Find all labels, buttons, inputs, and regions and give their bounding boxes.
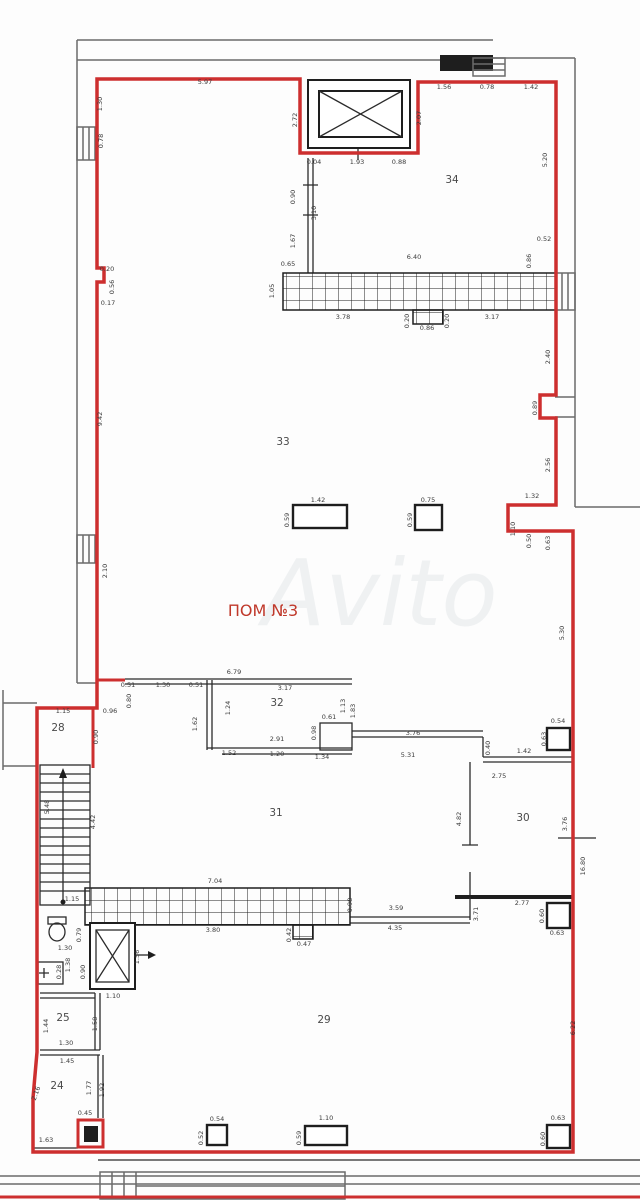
dimension-label: 1.34 <box>315 753 329 761</box>
dimension-label: 0.63 <box>550 929 564 937</box>
dimension-label: 1.45 <box>60 1057 74 1065</box>
dimension-label: 1.58 <box>91 1017 99 1031</box>
dimension-label: 0.51 <box>189 681 203 689</box>
dimension-label: 1.62 <box>191 717 199 731</box>
room-number-label: 28 <box>51 722 64 734</box>
dimension-label: 1.30 <box>59 1039 73 1047</box>
dimension-label: 0.20 <box>100 265 114 273</box>
dimension-label: 1.38 <box>64 958 72 972</box>
stairs <box>40 765 90 905</box>
dimension-label: 2.16 <box>30 1085 42 1101</box>
dimension-label: 16.80 <box>579 857 587 876</box>
toilet-icon <box>49 923 65 941</box>
dimension-label: 0.90 <box>92 730 100 744</box>
dimension-label: 1.15 <box>65 895 79 903</box>
dimension-label: 5.30 <box>558 626 566 640</box>
dimension-label: 0.50 <box>525 534 533 548</box>
dimension-label: 0.63 <box>540 732 548 746</box>
dimension-label: 0.89 <box>531 401 539 415</box>
dimension-label: 0.63 <box>544 536 552 550</box>
window <box>77 535 95 563</box>
window <box>77 127 95 160</box>
dimension-label: 1.13 <box>339 699 347 713</box>
dimension-label: 1.10 <box>106 992 120 1000</box>
dimension-label: 2.75 <box>492 772 506 780</box>
dimension-label: 3.76 <box>561 817 569 831</box>
interior-walls <box>85 80 573 939</box>
dimension-label: 3.59 <box>389 904 403 912</box>
dimension-label: 0.96 <box>103 707 117 715</box>
dimension-label: 5.48 <box>43 800 51 814</box>
dimension-label: 2.72 <box>291 113 299 127</box>
dimension-label: 1.42 <box>311 496 325 504</box>
dimension-label: 0.17 <box>101 299 115 307</box>
dimension-label: 3.10 <box>310 206 318 220</box>
room-number-label: 30 <box>516 812 529 824</box>
dimension-label: 0.75 <box>421 496 435 504</box>
dimension-label: 6.40 <box>407 253 421 261</box>
room-number-label: 25 <box>56 1012 69 1024</box>
dimension-label: 1.20 <box>270 750 284 758</box>
dimension-label: 0.47 <box>297 940 311 948</box>
floor-plan-svg: Avito <box>0 0 640 1200</box>
dimension-label: 1.56 <box>437 83 451 91</box>
closet <box>320 723 352 750</box>
dimension-label: 0.61 <box>322 713 336 721</box>
dimension-label: 1.10 <box>319 1114 333 1122</box>
dimension-label: 1.92 <box>98 1083 106 1097</box>
dimension-label: 0.56 <box>108 280 116 294</box>
dimension-label: 0.42 <box>285 928 293 942</box>
dimension-label: 6.22 <box>569 1021 577 1035</box>
dimension-label: 1.63 <box>39 1136 53 1144</box>
floor-plan-page: Avito <box>0 0 640 1200</box>
dimension-label: 0.60 <box>538 909 546 923</box>
dimension-label: 0.04 <box>307 158 321 166</box>
room-number-label: 33 <box>276 436 289 448</box>
dimension-label: 6.79 <box>227 668 241 676</box>
hatched-wall-notch <box>413 310 443 324</box>
dimension-label: 2.07 <box>415 111 423 125</box>
dimension-label: 4.42 <box>89 815 97 829</box>
dimension-label: 5.20 <box>541 153 549 167</box>
room-number-label: 24 <box>50 1080 64 1092</box>
dimension-label: 1.30 <box>96 97 104 111</box>
dimension-label: 2.77 <box>515 899 529 907</box>
hatched-wall-notch <box>293 925 313 939</box>
dimension-label: 0.98 <box>310 726 318 740</box>
plus-icon <box>39 968 49 978</box>
dimension-label: 3.71 <box>472 907 480 921</box>
dimension-label: 1.32 <box>525 492 539 500</box>
dimension-label: 0.40 <box>484 741 492 755</box>
dimension-label: 3.78 <box>336 313 350 321</box>
pillar <box>293 505 347 528</box>
dimension-label: 1.15 <box>56 707 70 715</box>
dimension-label: 0.88 <box>392 158 406 166</box>
watermark: Avito <box>257 540 497 647</box>
dimension-label: 0.80 <box>125 694 133 708</box>
dimension-label: 3.17 <box>485 313 499 321</box>
dimension-label: 0.52 <box>537 235 551 243</box>
dimension-label: 1.52 <box>222 749 236 757</box>
hatched-wall <box>283 273 556 310</box>
dimension-label: 0.52 <box>197 1131 205 1145</box>
dimension-label: 2.10 <box>101 564 109 578</box>
dimension-label: 3.17 <box>278 684 292 692</box>
dimension-label: 0.51 <box>121 681 135 689</box>
dimension-label: 0.90 <box>289 190 297 204</box>
dimension-label: 1.30 <box>156 681 170 689</box>
dimension-label: 2.40 <box>544 350 552 364</box>
dimension-label: 0.86 <box>420 324 434 332</box>
dimension-label: 0.54 <box>210 1115 224 1123</box>
dimension-label: 0.54 <box>551 717 565 725</box>
dimension-label: 0.20 <box>443 314 451 328</box>
dimension-label: 1.83 <box>349 704 357 718</box>
dimension-label: 1.42 <box>517 747 531 755</box>
dimension-label: 4.82 <box>455 812 463 826</box>
dimension-label: 0.59 <box>406 513 414 527</box>
dimension-label: 3.80 <box>206 926 220 934</box>
pillar <box>415 505 442 530</box>
unit-title: ПОМ №3 <box>228 601 298 620</box>
dimension-label: 0.59 <box>295 1131 303 1145</box>
dimension-label: 0.28 <box>55 965 63 979</box>
room-number-label: 32 <box>270 697 283 709</box>
dimension-label: 0.60 <box>539 1132 547 1146</box>
room-number-label: 29 <box>317 1014 330 1026</box>
dimension-label: 1.30 <box>58 944 72 952</box>
dimension-label: 1.93 <box>350 158 364 166</box>
dimension-label: 1.05 <box>268 284 276 298</box>
dimension-label: 5.31 <box>401 751 415 759</box>
dimension-label: 0.86 <box>525 254 533 268</box>
arrow-icon <box>148 951 156 959</box>
dimension-label: 0.45 <box>78 1109 92 1117</box>
pillar <box>305 1126 347 1145</box>
dimension-label: 1.44 <box>42 1019 50 1033</box>
dimension-label: 2.91 <box>270 735 284 743</box>
bottom-structure <box>100 1125 570 1199</box>
pillar <box>547 728 570 750</box>
pillar <box>547 903 570 928</box>
dimension-label: 7.04 <box>208 877 222 885</box>
pillar <box>207 1125 227 1145</box>
dimension-label: 9.42 <box>96 412 104 426</box>
dimension-label: 0.90 <box>79 965 87 979</box>
dimension-label: 0.98 <box>346 898 354 912</box>
dimension-label: 1.10 <box>509 522 517 536</box>
dimension-label: 1.67 <box>289 234 297 248</box>
dimension-label: 0.63 <box>551 1114 565 1122</box>
dimension-label: 0.20 <box>403 314 411 328</box>
dimension-label: 0.65 <box>281 260 295 268</box>
dimension-label: 0.78 <box>97 134 105 148</box>
dimension-label: 1.56 <box>133 950 141 964</box>
room-number-label: 31 <box>269 807 282 819</box>
room-number-label: 34 <box>445 174 459 186</box>
dimension-label: 2.56 <box>544 458 552 472</box>
dimension-label: 0.78 <box>480 83 494 91</box>
hatched-wall <box>85 888 350 925</box>
dimension-label: 1.24 <box>224 701 232 715</box>
dimension-label: 0.79 <box>75 928 83 942</box>
pillar <box>547 1125 570 1148</box>
dimension-label: 4.35 <box>388 924 402 932</box>
dimension-label: 1.42 <box>524 83 538 91</box>
dimension-label: 5.97 <box>198 78 212 86</box>
dimension-label: 0.59 <box>283 513 291 527</box>
dimension-label: 3.76 <box>406 729 420 737</box>
dimension-label: 1.77 <box>85 1081 93 1095</box>
